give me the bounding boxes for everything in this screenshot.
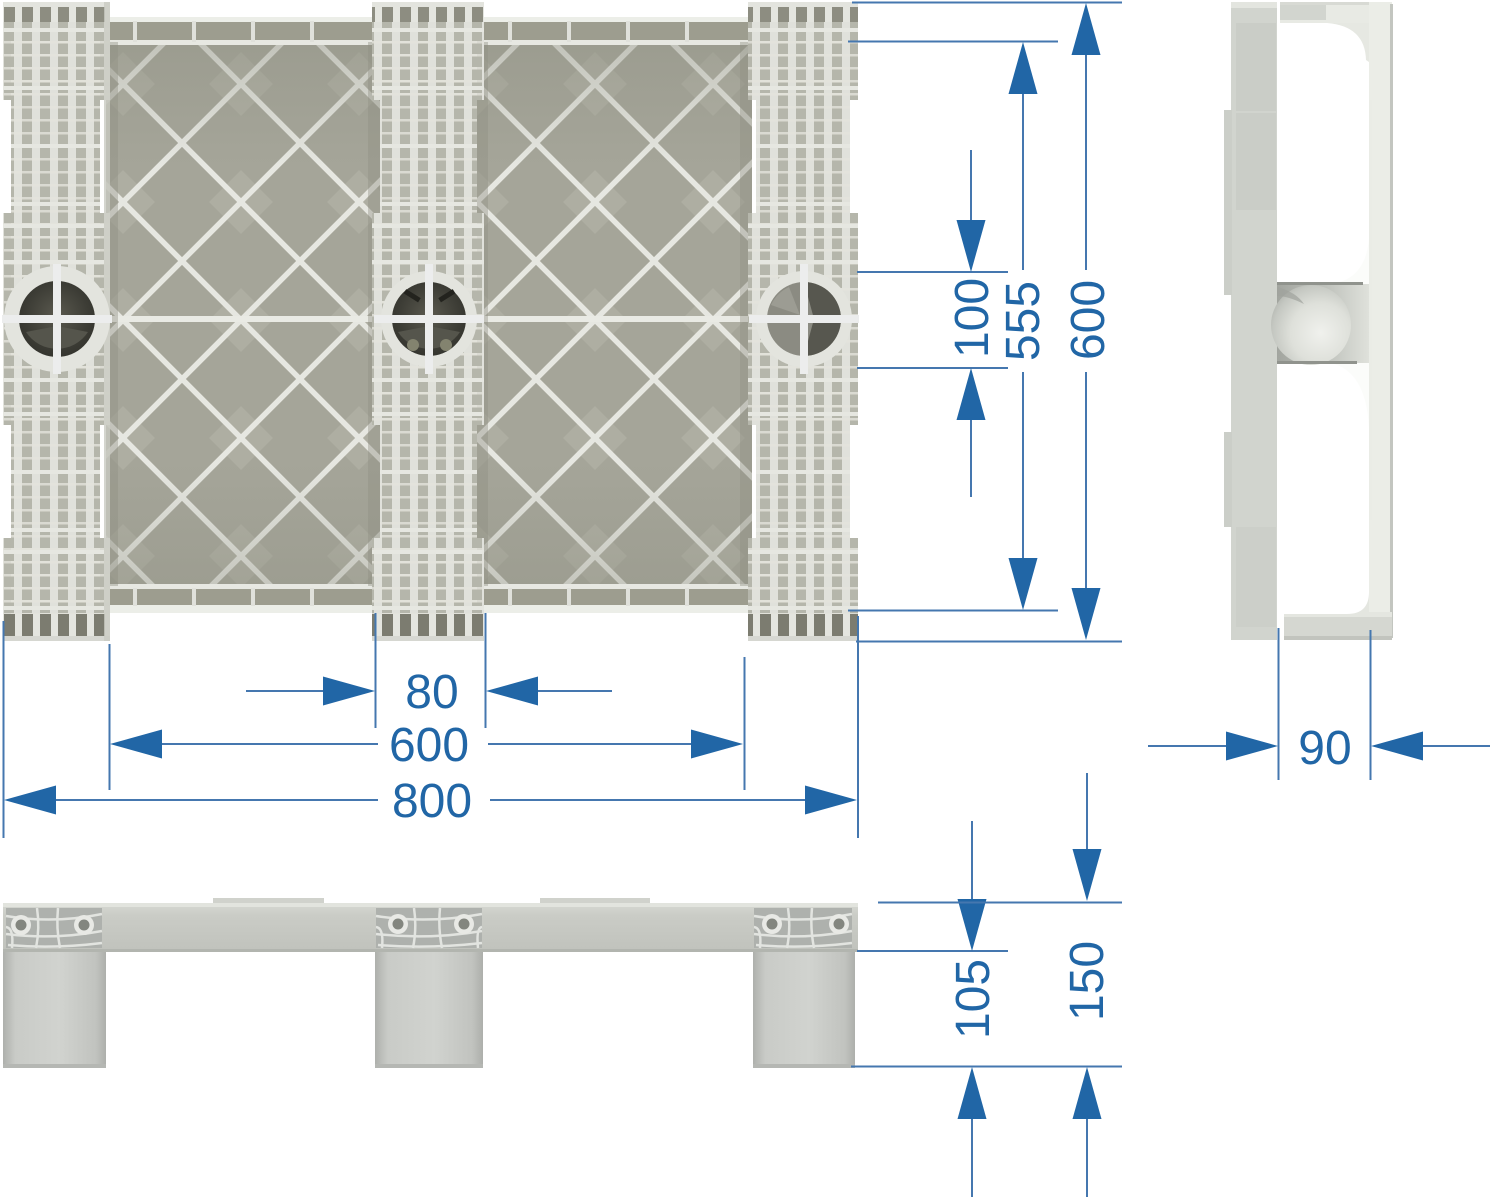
svg-text:105: 105 xyxy=(947,959,1000,1039)
svg-text:600: 600 xyxy=(1062,280,1115,360)
svg-text:600: 600 xyxy=(389,719,469,772)
svg-text:800: 800 xyxy=(392,775,472,828)
svg-text:90: 90 xyxy=(1298,722,1351,775)
svg-text:100: 100 xyxy=(946,278,999,358)
svg-text:80: 80 xyxy=(405,666,458,719)
svg-text:555: 555 xyxy=(997,281,1050,361)
svg-text:150: 150 xyxy=(1061,941,1114,1021)
